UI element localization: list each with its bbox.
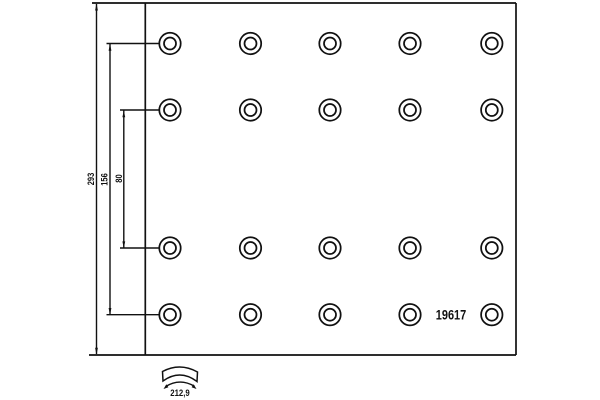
svg-text:156: 156 <box>99 173 109 186</box>
svg-text:19617: 19617 <box>436 308 467 323</box>
svg-text:80: 80 <box>114 174 124 183</box>
svg-text:212,9: 212,9 <box>170 388 190 398</box>
svg-text:293: 293 <box>86 173 96 186</box>
